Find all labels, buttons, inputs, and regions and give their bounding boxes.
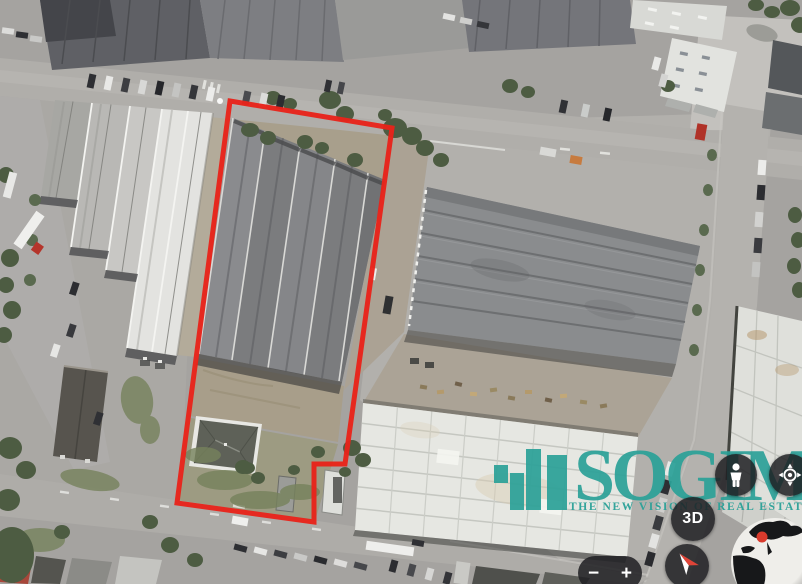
compass-button[interactable] [665, 544, 709, 584]
globe-overview[interactable] [729, 516, 802, 584]
globe-location-marker-icon [757, 532, 768, 543]
compass-needle-icon [665, 544, 709, 584]
my-location-target-icon [775, 460, 802, 490]
map-viewport: SOGIM THE NEW VISION OF REAL ESTATE [0, 0, 802, 584]
3d-button-label: 3D [682, 510, 703, 528]
zoom-in-button[interactable]: + [621, 564, 632, 583]
zoom-control: − + [578, 556, 642, 584]
3d-toggle-button[interactable]: 3D [671, 497, 715, 541]
zoom-out-button[interactable]: − [588, 564, 599, 583]
pegman-button[interactable] [715, 454, 757, 496]
street-view-pegman-icon [723, 462, 749, 488]
globe-shading [731, 518, 802, 584]
satellite-imagery[interactable] [0, 0, 802, 584]
small-marker-dot [217, 98, 223, 104]
